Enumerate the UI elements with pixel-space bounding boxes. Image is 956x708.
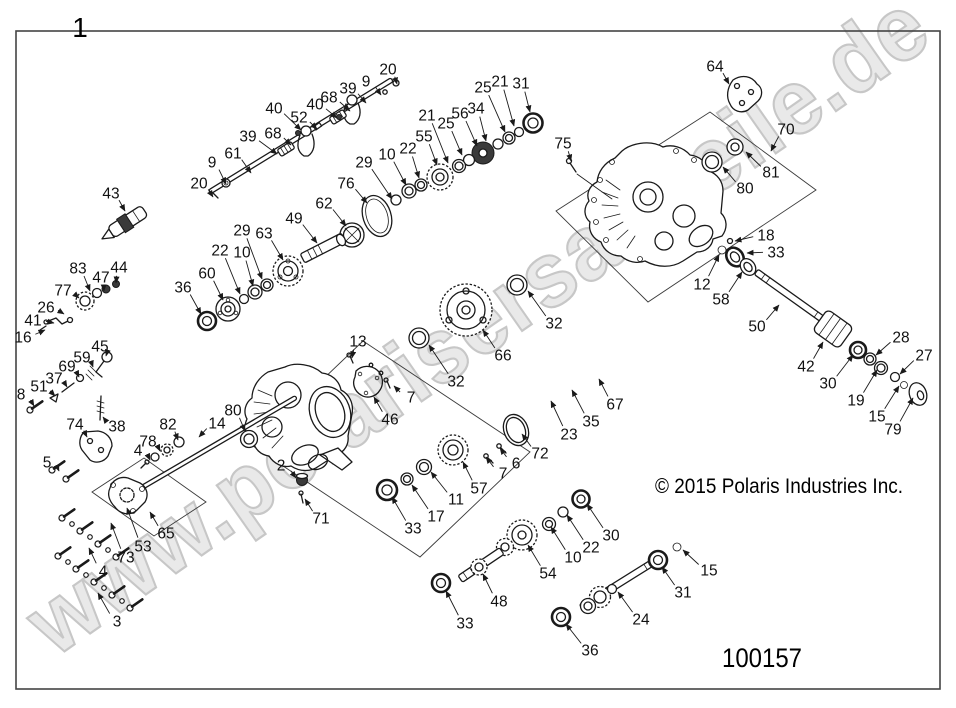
callout-8: 8 xyxy=(17,387,26,404)
callout-33: 33 xyxy=(404,521,421,538)
callout-62: 62 xyxy=(315,196,332,213)
callout-20: 20 xyxy=(190,176,208,193)
leader-line-36 xyxy=(190,294,201,314)
callout-2: 2 xyxy=(277,458,286,475)
leader-line-36 xyxy=(566,624,581,643)
leader-line-33 xyxy=(747,252,763,253)
leader-line-38 xyxy=(103,417,106,421)
leader-line-21 xyxy=(504,90,514,126)
leader-line-39 xyxy=(259,141,277,154)
callout-22: 22 xyxy=(399,141,416,158)
leader-line-30 xyxy=(837,355,853,376)
callout-17: 17 xyxy=(427,509,444,526)
leader-line-56 xyxy=(466,121,477,146)
leader-line-22 xyxy=(412,156,419,178)
leader-line-10 xyxy=(246,261,253,286)
leader-line-35 xyxy=(572,390,584,413)
callout-30: 30 xyxy=(819,376,837,393)
callout-4: 4 xyxy=(99,564,108,581)
leader-line-19 xyxy=(863,370,877,393)
leader-line-67 xyxy=(599,379,608,396)
leader-line-51 xyxy=(50,391,55,396)
callout-37: 37 xyxy=(45,371,62,388)
callout-5: 5 xyxy=(43,455,52,472)
exploded-parts-diagram: www.polarisersatzteile.de xyxy=(0,0,956,708)
callout-80: 80 xyxy=(224,403,242,420)
callout-57: 57 xyxy=(470,481,487,498)
callout-31: 31 xyxy=(674,585,691,602)
callout-3: 3 xyxy=(113,614,122,631)
callout-76: 76 xyxy=(337,176,354,193)
leader-line-57 xyxy=(463,462,472,480)
leader-line-14 xyxy=(199,429,207,437)
callout-58: 58 xyxy=(712,292,729,309)
callout-12: 12 xyxy=(693,277,710,294)
callout-55: 55 xyxy=(415,129,432,146)
callout-11: 11 xyxy=(448,492,464,509)
leader-line-34 xyxy=(480,117,486,141)
leader-line-22 xyxy=(225,258,240,294)
callout-81: 81 xyxy=(762,165,779,182)
vent-plug-43 xyxy=(97,204,148,245)
leader-line-31 xyxy=(662,567,675,585)
callout-42: 42 xyxy=(797,359,814,376)
callout-49: 49 xyxy=(285,211,302,228)
leader-line-60 xyxy=(214,281,223,300)
callout-10: 10 xyxy=(378,147,396,164)
callout-51: 51 xyxy=(30,379,47,396)
callout-28: 28 xyxy=(892,330,909,347)
part-number: 100157 xyxy=(722,643,802,673)
callout-60: 60 xyxy=(198,266,216,283)
callout-43: 43 xyxy=(102,186,119,203)
assembly-number: 1 xyxy=(72,12,88,43)
leader-line-79 xyxy=(900,398,913,421)
callout-13: 13 xyxy=(349,334,366,351)
callout-46: 46 xyxy=(381,412,398,429)
callout-61: 61 xyxy=(224,146,241,163)
leader-line-30 xyxy=(587,504,603,528)
callout-24: 24 xyxy=(632,612,650,629)
callout-9: 9 xyxy=(362,74,371,91)
callout-72: 72 xyxy=(531,446,548,463)
leader-line-63 xyxy=(271,240,283,260)
callout-35: 35 xyxy=(582,414,599,431)
callout-21: 21 xyxy=(418,108,435,125)
leader-line-4 xyxy=(148,456,150,460)
callout-32: 32 xyxy=(447,374,464,391)
callout-19: 19 xyxy=(847,393,864,410)
leader-line-25 xyxy=(489,95,505,132)
callout-23: 23 xyxy=(560,427,577,444)
leader-line-26 xyxy=(58,310,64,314)
callout-44: 44 xyxy=(110,260,128,277)
callout-6: 6 xyxy=(512,456,521,473)
leader-line-33 xyxy=(446,591,458,615)
callout-16: 16 xyxy=(14,330,31,347)
leader-line-78 xyxy=(158,447,160,451)
leader-line-18 xyxy=(735,237,753,241)
leader-line-10 xyxy=(551,527,565,550)
leader-line-64 xyxy=(723,73,729,84)
copyright-text: © 2015 Polaris Industries Inc. xyxy=(655,475,903,498)
callout-36: 36 xyxy=(581,643,598,660)
callout-70: 70 xyxy=(777,122,795,139)
callout-52: 52 xyxy=(290,110,307,127)
leader-line-62 xyxy=(333,210,346,226)
callout-64: 64 xyxy=(706,59,724,76)
callout-38: 38 xyxy=(108,419,125,436)
callout-33: 33 xyxy=(456,616,473,633)
leader-line-42 xyxy=(814,342,823,359)
leader-line-23 xyxy=(551,401,563,426)
callout-74: 74 xyxy=(66,417,84,434)
callout-63: 63 xyxy=(255,226,272,243)
leader-line-29 xyxy=(372,169,392,199)
callout-21: 21 xyxy=(491,74,508,91)
callout-40: 40 xyxy=(265,101,283,118)
leader-line-8 xyxy=(31,400,34,406)
leader-line-27 xyxy=(900,361,914,374)
leader-line-24 xyxy=(618,592,633,612)
callout-73: 73 xyxy=(117,550,134,567)
callout-45: 45 xyxy=(91,339,108,356)
leader-line-25 xyxy=(452,131,462,155)
leader-line-48 xyxy=(483,574,492,593)
callout-18: 18 xyxy=(757,228,774,245)
callout-33: 33 xyxy=(767,245,784,262)
callout-22: 22 xyxy=(211,243,228,260)
callout-10: 10 xyxy=(564,550,582,567)
callout-65: 65 xyxy=(157,526,174,543)
leader-line-83 xyxy=(84,276,90,291)
leader-line-11 xyxy=(431,472,447,492)
leader-line-43 xyxy=(119,200,125,211)
leader-line-58 xyxy=(729,272,742,292)
callout-82: 82 xyxy=(159,417,176,434)
callout-15: 15 xyxy=(868,409,885,426)
callout-7: 7 xyxy=(407,390,416,407)
callout-66: 66 xyxy=(494,348,511,365)
leader-line-55 xyxy=(429,144,437,165)
callout-29: 29 xyxy=(233,223,250,240)
callout-59: 59 xyxy=(73,350,90,367)
callout-75: 75 xyxy=(554,136,571,153)
callout-50: 50 xyxy=(748,319,766,336)
callout-15: 15 xyxy=(700,563,717,580)
cover-72 xyxy=(484,411,533,463)
callout-10: 10 xyxy=(233,245,251,262)
callout-27: 27 xyxy=(915,348,932,365)
callout-30: 30 xyxy=(602,528,620,545)
leader-line-16 xyxy=(35,330,45,334)
callout-9: 9 xyxy=(208,155,217,172)
callout-80: 80 xyxy=(736,181,754,198)
callout-77: 77 xyxy=(54,283,71,300)
callout-79: 79 xyxy=(884,422,901,439)
callout-34: 34 xyxy=(467,101,485,118)
leader-line-15 xyxy=(683,550,699,565)
leader-line-75 xyxy=(568,151,571,161)
leader-line-10 xyxy=(394,162,406,185)
leader-line-54 xyxy=(528,545,540,566)
leader-line-49 xyxy=(303,225,317,243)
callout-4: 4 xyxy=(134,443,143,460)
leader-line-15 xyxy=(885,386,899,409)
leader-line-44 xyxy=(116,276,117,283)
callout-83: 83 xyxy=(69,261,86,278)
callout-68: 68 xyxy=(264,126,281,143)
callout-39: 39 xyxy=(239,129,256,146)
callout-41: 41 xyxy=(24,313,41,330)
callout-32: 32 xyxy=(545,316,562,333)
callout-20: 20 xyxy=(379,62,397,79)
leader-line-33 xyxy=(392,497,406,521)
callout-22: 22 xyxy=(582,540,599,557)
leader-line-50 xyxy=(766,305,779,320)
leader-line-31 xyxy=(525,92,530,112)
callout-14: 14 xyxy=(208,416,226,433)
leader-line-76 xyxy=(355,189,367,203)
leader-line-59 xyxy=(92,363,93,367)
callout-7: 7 xyxy=(499,466,508,483)
callout-67: 67 xyxy=(606,397,623,414)
leader-line-28 xyxy=(876,342,890,355)
callout-36: 36 xyxy=(174,280,191,297)
callout-71: 71 xyxy=(312,511,329,528)
callout-29: 29 xyxy=(355,155,372,172)
callout-31: 31 xyxy=(512,76,529,93)
callout-40: 40 xyxy=(306,97,324,114)
leader-line-17 xyxy=(412,485,428,509)
callout-25: 25 xyxy=(474,80,491,97)
callout-48: 48 xyxy=(490,594,507,611)
callout-53: 53 xyxy=(134,539,151,556)
callout-39: 39 xyxy=(339,81,356,98)
leader-line-22 xyxy=(567,515,583,540)
callout-47: 47 xyxy=(92,270,109,287)
callout-54: 54 xyxy=(539,566,557,583)
callout-25: 25 xyxy=(437,116,454,133)
shift-rail-assembly xyxy=(209,78,399,198)
leader-line-37 xyxy=(65,383,67,387)
leader-line-5 xyxy=(57,467,59,471)
